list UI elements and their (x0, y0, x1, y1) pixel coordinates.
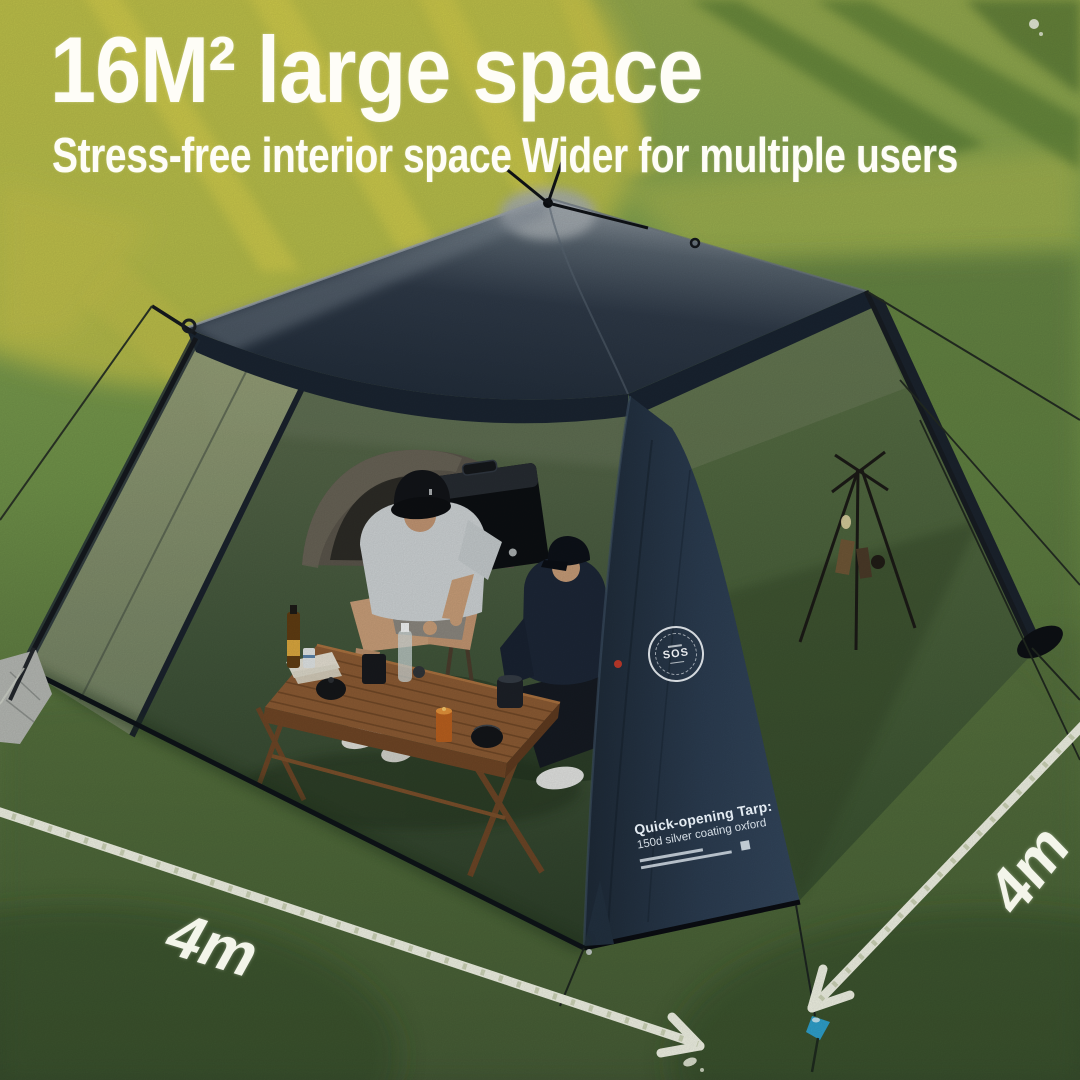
logo-text: SOS (662, 647, 690, 662)
brand-logo-ring: SOS (652, 630, 699, 677)
product-hero-image: 16M² large space Stress-free interior sp… (0, 0, 1080, 1080)
fine-print-square (740, 840, 750, 850)
page-subtitle: Stress-free interior space Wider for mul… (52, 128, 958, 184)
logo-bar-bottom (670, 660, 684, 663)
page-title: 16M² large space (50, 16, 703, 124)
